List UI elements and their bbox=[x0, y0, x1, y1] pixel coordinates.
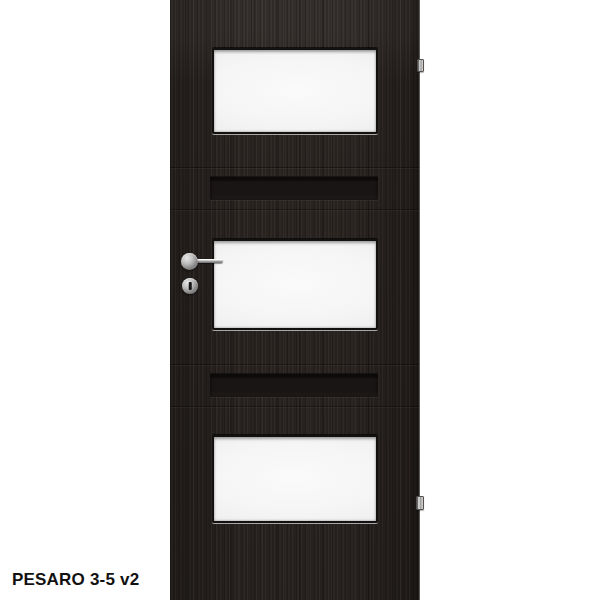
glass-panel-middle bbox=[212, 239, 378, 330]
key-lock-rosette bbox=[182, 278, 198, 294]
groove-strip-upper bbox=[210, 177, 378, 200]
keyhole-icon bbox=[189, 282, 192, 290]
glass-panel-top bbox=[212, 48, 378, 134]
glass-panel-bottom bbox=[212, 435, 378, 523]
rail-seam bbox=[170, 209, 419, 210]
rail-seam bbox=[170, 406, 419, 407]
rail-seam bbox=[170, 364, 419, 365]
product-caption: PESARO 3-5 v2 bbox=[12, 570, 139, 590]
hinge-bottom bbox=[416, 496, 424, 510]
rail-seam bbox=[170, 167, 419, 168]
hinge-top bbox=[417, 59, 424, 72]
door-slab bbox=[170, 0, 420, 600]
groove-strip-lower bbox=[210, 374, 378, 397]
product-image: PESARO 3-5 v2 bbox=[0, 0, 600, 600]
door-handle-rosette bbox=[181, 253, 198, 270]
